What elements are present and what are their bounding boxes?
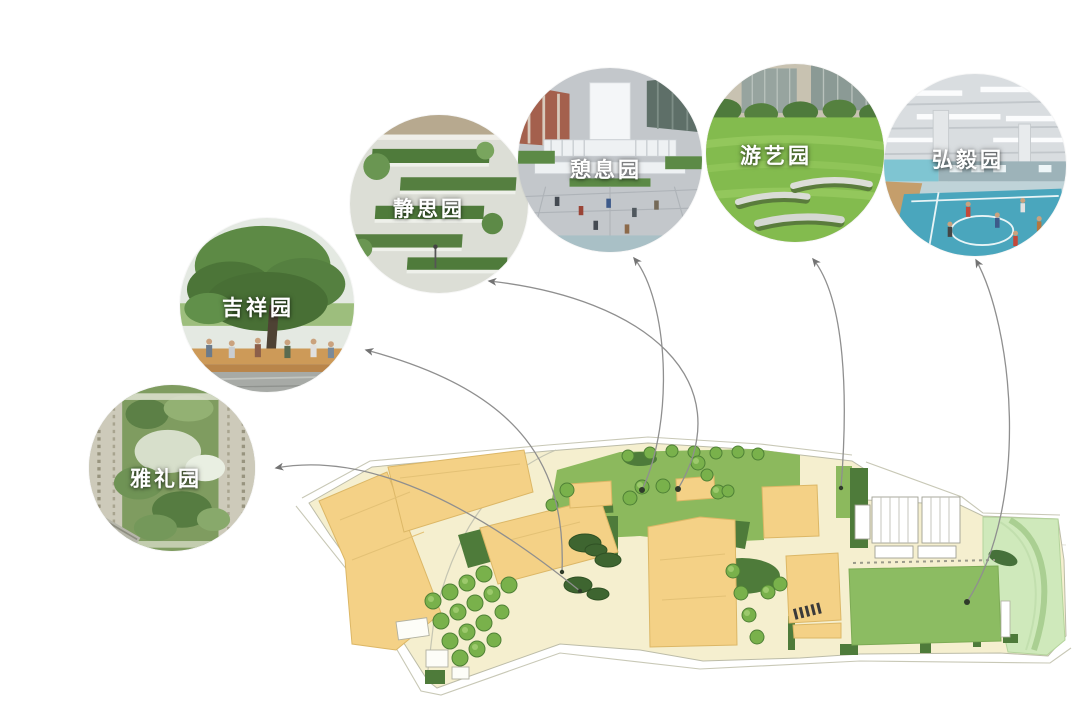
garden-label-jingsi: 静思园 xyxy=(393,193,465,223)
garden-label-hongyi: 弘毅园 xyxy=(932,144,1004,174)
sports-field xyxy=(849,560,1010,645)
garden-label-jixiang: 吉祥园 xyxy=(222,292,294,322)
diagram-stage: 雅礼园 吉祥园 静思园 憩息园 游艺园 弘毅园 xyxy=(0,0,1080,713)
garden-label-youyi: 游艺园 xyxy=(740,140,812,170)
garden-label-yali: 雅礼园 xyxy=(130,463,202,493)
garden-label-qixi: 憩息园 xyxy=(570,154,642,184)
